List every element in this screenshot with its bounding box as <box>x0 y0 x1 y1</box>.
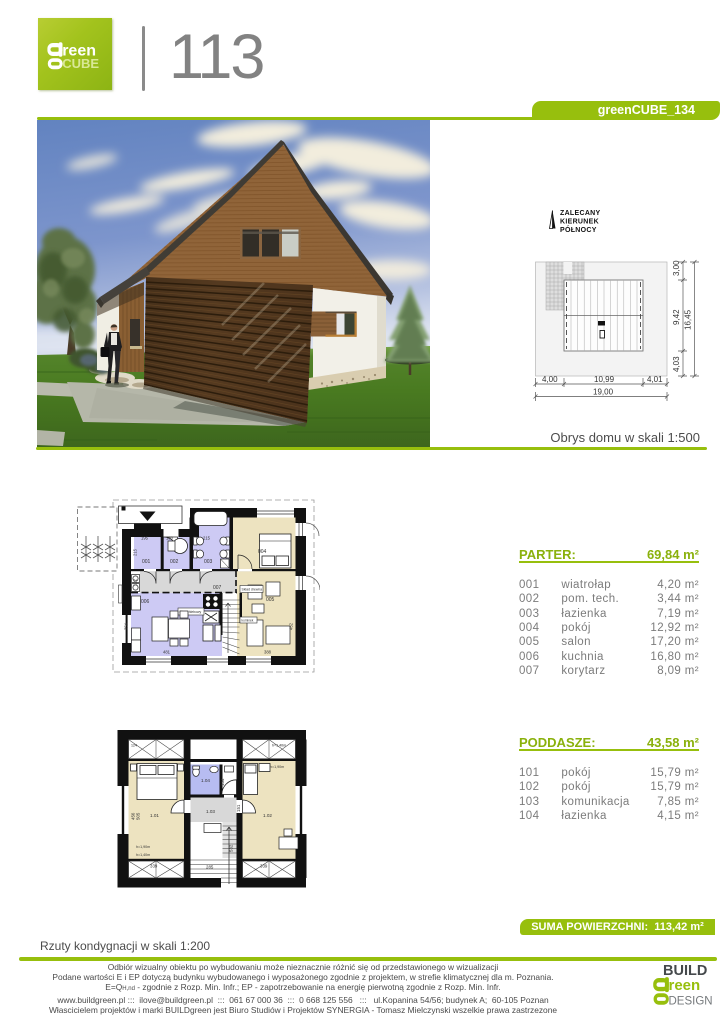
svg-text:1.03: 1.03 <box>206 809 215 814</box>
svg-text:reen: reen <box>669 977 701 994</box>
svg-text:195: 195 <box>141 536 149 541</box>
svg-text:007: 007 <box>213 585 222 591</box>
svg-text:180: 180 <box>166 536 174 541</box>
svg-text:005: 005 <box>266 597 275 603</box>
svg-text:h=1,90m: h=1,90m <box>270 765 284 769</box>
svg-text:215: 215 <box>203 536 211 541</box>
svg-text:9,42: 9,42 <box>672 309 681 325</box>
svg-text:1.02: 1.02 <box>263 813 272 818</box>
svg-text:16,45: 16,45 <box>684 309 693 330</box>
svg-text:006: 006 <box>141 599 150 605</box>
svg-text:h=1,40m: h=1,40m <box>136 853 150 857</box>
svg-text:1.04: 1.04 <box>201 778 210 783</box>
svg-text:354: 354 <box>124 622 129 630</box>
svg-text:CUBE: CUBE <box>62 56 99 71</box>
svg-text:452: 452 <box>289 622 294 630</box>
svg-text:151: 151 <box>236 804 241 812</box>
svg-text:003: 003 <box>204 559 213 565</box>
svg-text:10,99: 10,99 <box>594 375 615 384</box>
svg-text:PÓŁNOCY: PÓŁNOCY <box>560 225 597 233</box>
svg-text:285: 285 <box>206 865 214 870</box>
svg-text:Skład drewna: Skład drewna <box>242 588 263 592</box>
svg-text:19,00: 19,00 <box>593 388 614 397</box>
svg-text:DESIGN: DESIGN <box>669 995 713 1007</box>
svg-text:388: 388 <box>264 650 272 655</box>
svg-text:481: 481 <box>163 650 171 655</box>
svg-text:h=1,40m: h=1,40m <box>272 744 286 748</box>
svg-text:h=1,90m: h=1,90m <box>136 845 150 849</box>
svg-text:134: 134 <box>220 778 225 786</box>
svg-text:505: 505 <box>136 812 141 820</box>
svg-text:002: 002 <box>170 559 179 565</box>
svg-text:532: 532 <box>229 844 234 852</box>
svg-text:ZALECANY: ZALECANY <box>560 210 601 217</box>
svg-text:KIERUNEK: KIERUNEK <box>560 219 599 226</box>
svg-text:4,03: 4,03 <box>672 356 681 372</box>
svg-text:4,01: 4,01 <box>647 375 663 384</box>
svg-text:001: 001 <box>142 559 151 565</box>
svg-text:4,00: 4,00 <box>542 375 558 384</box>
svg-text:339: 339 <box>260 864 268 869</box>
svg-text:339: 339 <box>150 864 158 869</box>
svg-text:1.01: 1.01 <box>150 813 159 818</box>
svg-text:3,00: 3,00 <box>672 260 681 276</box>
svg-text:122: 122 <box>133 578 138 586</box>
svg-text:kominek: kominek <box>242 619 254 623</box>
svg-text:124: 124 <box>131 744 137 748</box>
svg-text:215: 215 <box>133 548 138 556</box>
svg-text:004: 004 <box>258 549 267 555</box>
